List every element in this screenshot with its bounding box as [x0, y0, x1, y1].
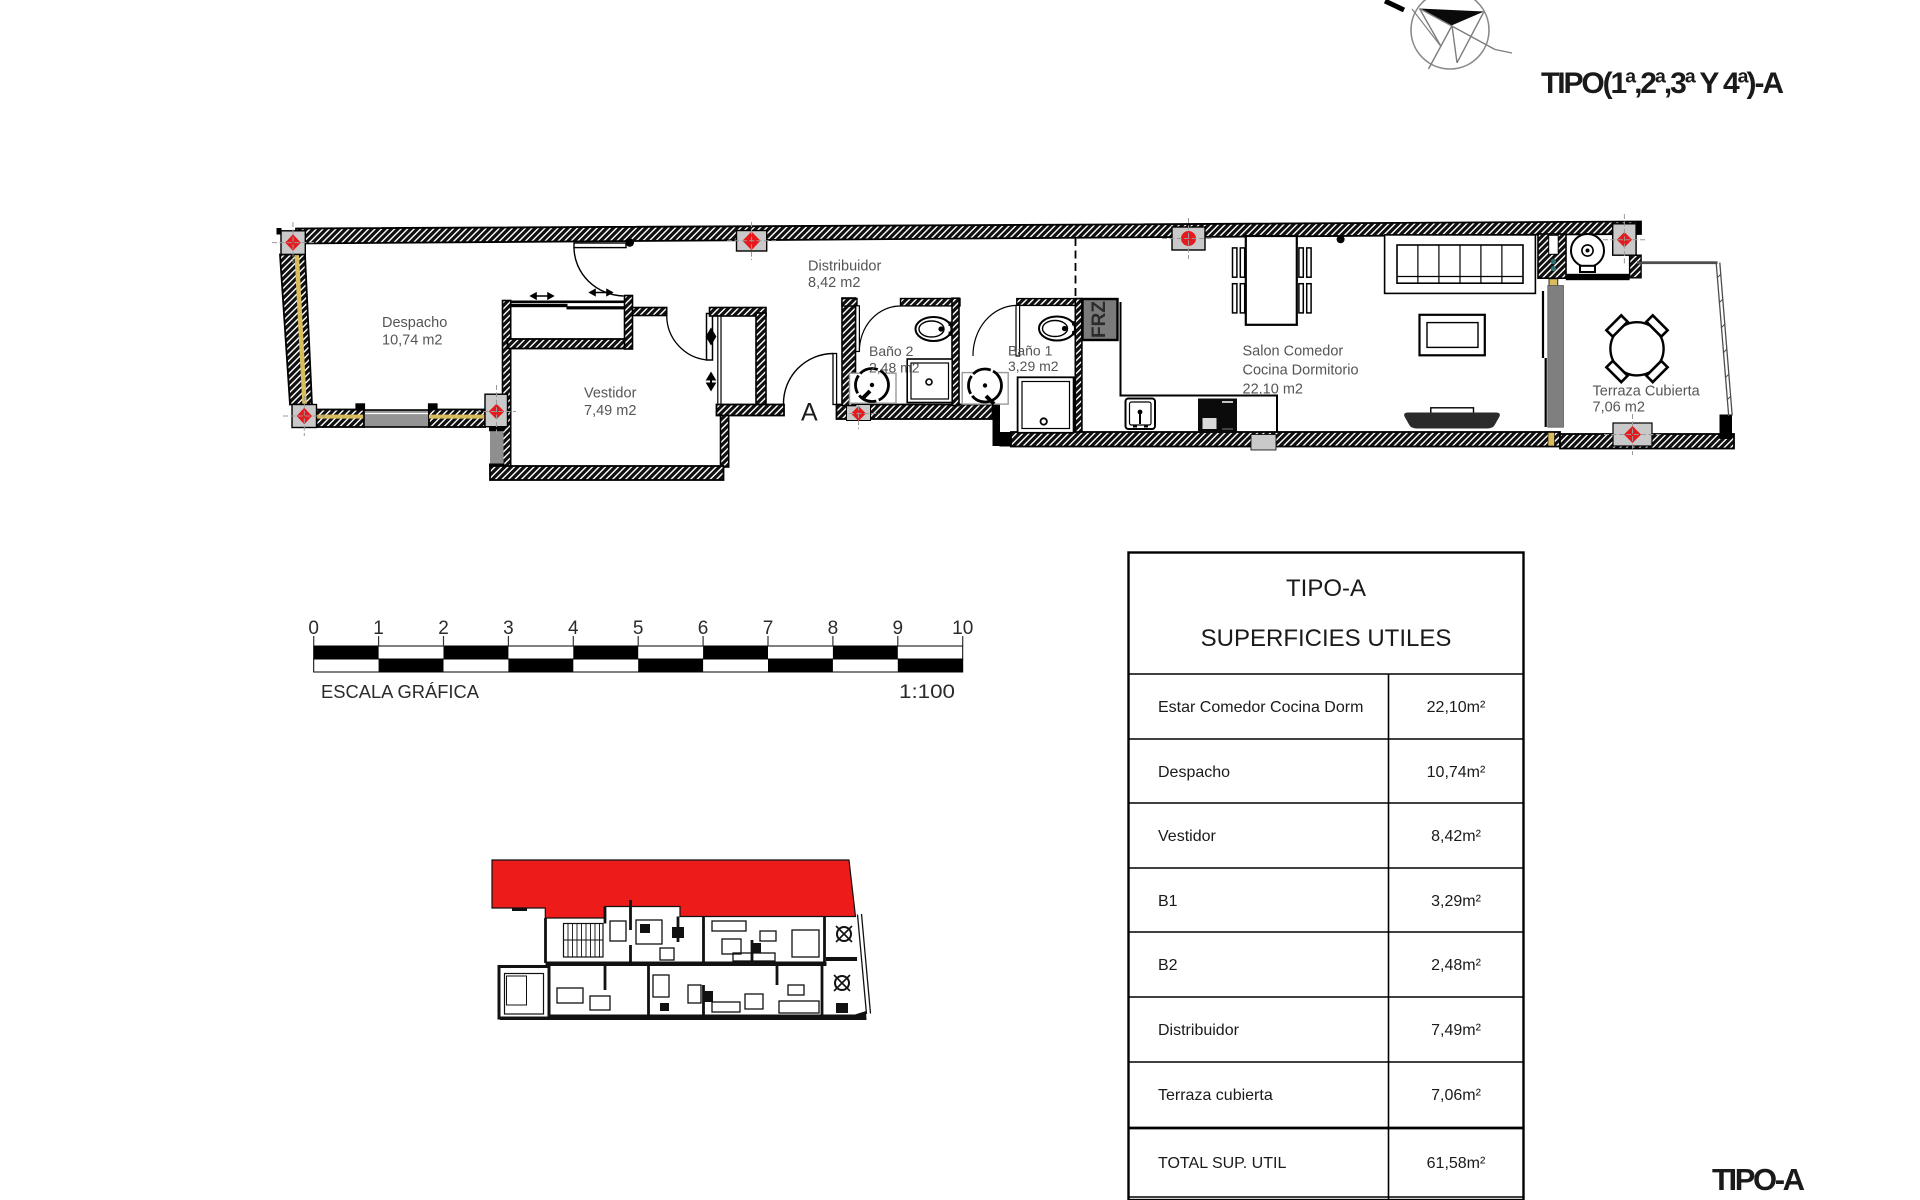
svg-text:Baño 2: Baño 2 — [869, 343, 914, 359]
svg-text:5: 5 — [633, 618, 644, 639]
svg-text:2,48 m2: 2,48 m2 — [869, 360, 920, 376]
svg-text:FRZ: FRZ — [1089, 301, 1110, 338]
svg-text:1:100: 1:100 — [899, 682, 955, 703]
svg-text:TIPO-A: TIPO-A — [1286, 575, 1366, 602]
svg-text:7,49m²: 7,49m² — [1431, 1022, 1481, 1039]
svg-text:Salon Comedor: Salon Comedor — [1243, 344, 1344, 360]
svg-text:Distribuidor: Distribuidor — [808, 259, 881, 275]
svg-text:8,42 m2: 8,42 m2 — [808, 275, 860, 291]
svg-text:1: 1 — [373, 618, 384, 639]
svg-text:B1: B1 — [1158, 893, 1178, 910]
svg-text:6: 6 — [698, 618, 709, 639]
svg-text:B2: B2 — [1158, 957, 1178, 974]
svg-text:2,48m²: 2,48m² — [1431, 957, 1481, 974]
svg-text:Distribuidor: Distribuidor — [1158, 1022, 1240, 1039]
svg-text:4: 4 — [568, 618, 579, 639]
svg-text:22,10m²: 22,10m² — [1427, 699, 1486, 716]
svg-text:Despacho: Despacho — [1158, 764, 1230, 781]
svg-text:3: 3 — [503, 618, 514, 639]
svg-text:Terraza cubierta: Terraza cubierta — [1158, 1087, 1273, 1104]
svg-text:Vestidor: Vestidor — [584, 386, 637, 402]
svg-text:7,06 m2: 7,06 m2 — [1593, 400, 1645, 416]
svg-text:ESCALA GRÁFICA: ESCALA GRÁFICA — [321, 682, 479, 702]
svg-text:10,74 m2: 10,74 m2 — [382, 333, 442, 349]
svg-text:61,58m²: 61,58m² — [1427, 1155, 1486, 1172]
svg-text:10,74m²: 10,74m² — [1427, 764, 1486, 781]
svg-text:8,42m²: 8,42m² — [1431, 828, 1481, 845]
svg-text:TIPO(1ª,2ª,3ª Y 4ª)-A: TIPO(1ª,2ª,3ª Y 4ª)-A — [1541, 67, 1784, 100]
svg-text:7: 7 — [763, 618, 774, 639]
svg-text:3,29m²: 3,29m² — [1431, 893, 1481, 910]
svg-text:9: 9 — [893, 618, 904, 639]
svg-text:0: 0 — [308, 618, 319, 639]
svg-text:10: 10 — [952, 618, 973, 639]
svg-text:Estar Comedor Cocina Dorm: Estar Comedor Cocina Dorm — [1158, 699, 1363, 716]
svg-text:Vestidor: Vestidor — [1158, 828, 1216, 845]
svg-text:SUPERFICIES UTILES: SUPERFICIES UTILES — [1201, 625, 1452, 652]
svg-text:22,10 m2: 22,10 m2 — [1243, 382, 1303, 398]
svg-text:Terraza Cubierta: Terraza Cubierta — [1593, 384, 1701, 400]
svg-text:Baño 1: Baño 1 — [1008, 343, 1053, 359]
svg-text:TIPO-A: TIPO-A — [1712, 1162, 1805, 1197]
svg-text:3,29 m2: 3,29 m2 — [1008, 358, 1059, 374]
svg-text:2: 2 — [438, 618, 449, 639]
svg-text:7,06m²: 7,06m² — [1431, 1087, 1481, 1104]
svg-text:TOTAL SUP. UTIL: TOTAL SUP. UTIL — [1158, 1155, 1286, 1172]
svg-text:Cocina Dormitorio: Cocina Dormitorio — [1243, 363, 1359, 379]
svg-text:A: A — [801, 399, 818, 427]
svg-text:Despacho: Despacho — [382, 315, 447, 331]
svg-text:8: 8 — [828, 618, 839, 639]
svg-text:7,49 m2: 7,49 m2 — [584, 403, 636, 419]
